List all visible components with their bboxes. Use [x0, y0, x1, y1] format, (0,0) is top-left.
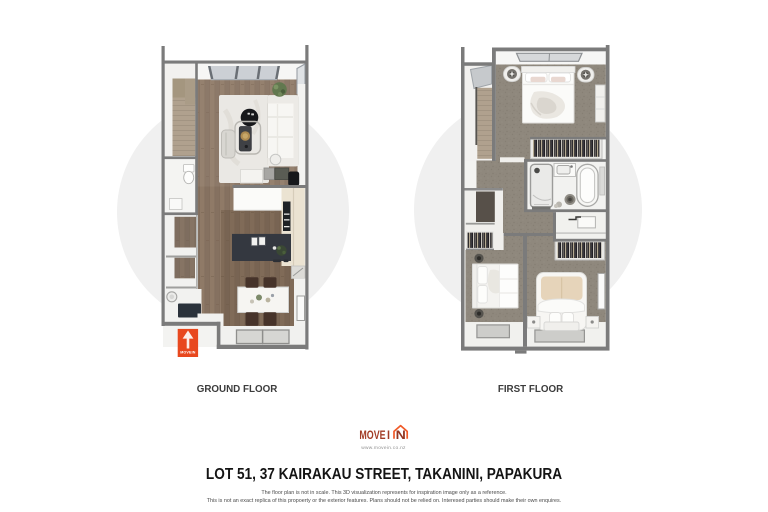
svg-text:I: I	[387, 428, 390, 442]
svg-text:MOVEIN: MOVEIN	[180, 351, 196, 355]
svg-text:www.movein.co.nz: www.movein.co.nz	[361, 445, 406, 451]
svg-text:MOVE: MOVE	[359, 428, 385, 442]
